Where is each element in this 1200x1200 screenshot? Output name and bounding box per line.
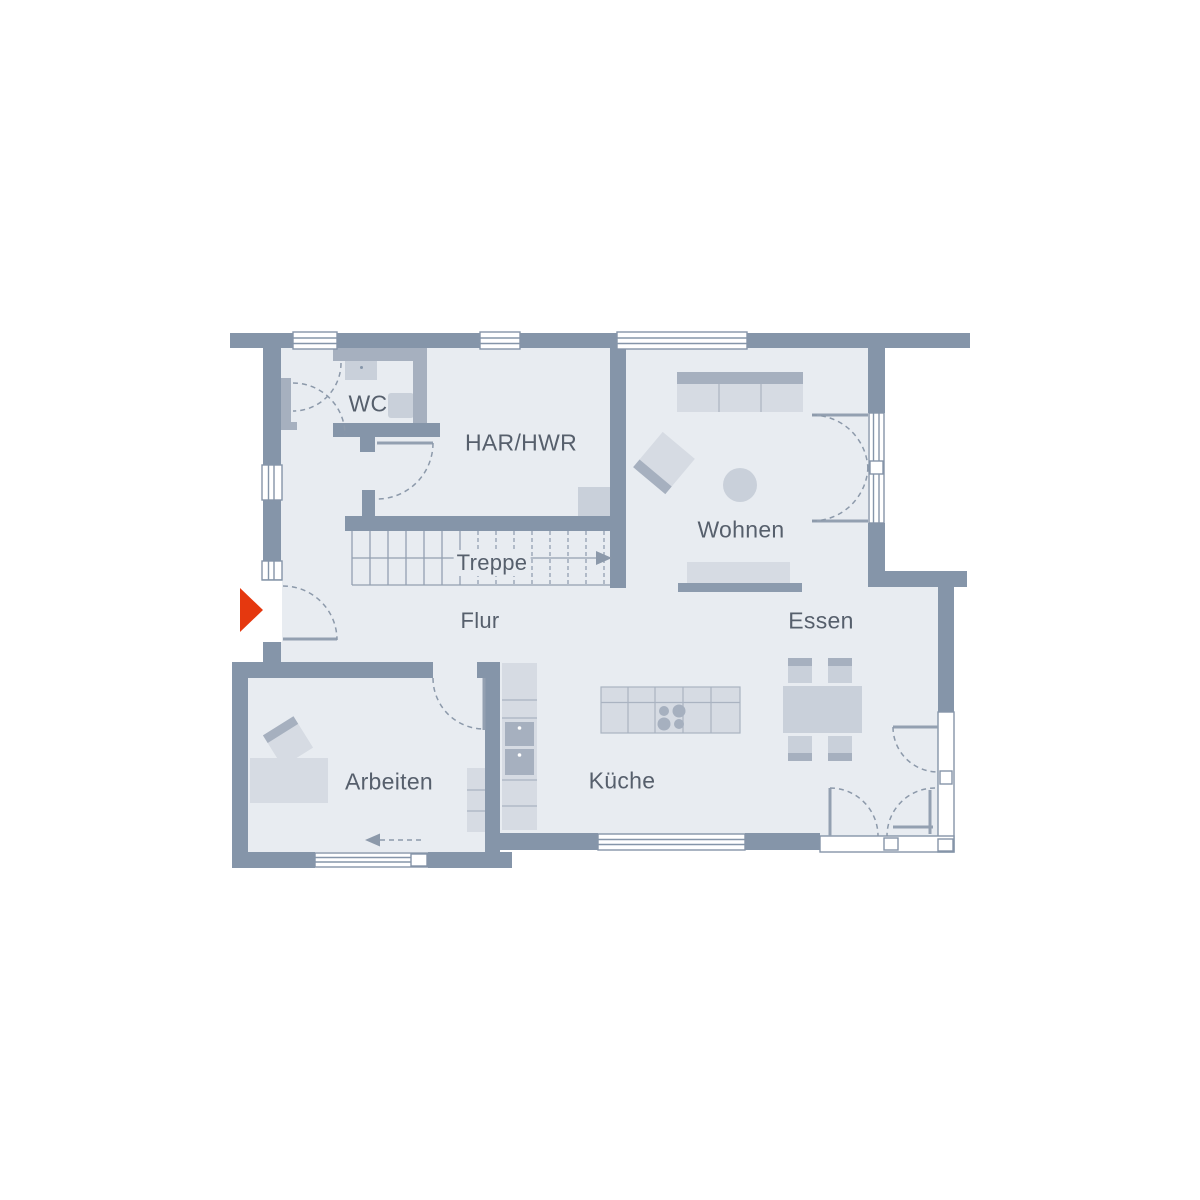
window-kueche	[598, 834, 745, 850]
room-label-kueche: Küche	[589, 768, 656, 795]
french-door-wohnen	[812, 413, 884, 523]
window-left-upper	[262, 465, 282, 500]
window-har	[480, 332, 520, 349]
linework-overlay	[0, 0, 1200, 1200]
sliding-door-arrow-icon	[365, 834, 425, 847]
entrance-direction-arrow-icon	[240, 588, 263, 632]
room-label-flur: Flur	[460, 608, 499, 634]
room-label-wc: WC	[349, 391, 388, 418]
room-label-wohnen: Wohnen	[697, 517, 784, 544]
corner-glazing	[820, 712, 954, 852]
door-arc-wc	[293, 363, 345, 435]
room-label-arbeiten: Arbeiten	[345, 769, 433, 796]
window-wohnen-top	[617, 332, 747, 349]
cooktop-icon	[658, 705, 686, 731]
room-label-har-hwr: HAR/HWR	[465, 430, 577, 457]
entrance-door	[262, 580, 337, 642]
kitchen-island-grid	[601, 687, 740, 733]
door-arbeiten	[433, 678, 484, 730]
floor-plan: WC HAR/HWR Treppe Flur Wohnen Essen Arbe…	[0, 0, 1200, 1200]
room-label-essen: Essen	[788, 608, 853, 635]
room-label-treppe: Treppe	[454, 550, 531, 576]
window-left-lower	[262, 561, 282, 580]
window-wc	[293, 332, 337, 349]
sliding-window-arbeiten	[315, 853, 428, 867]
door-har	[377, 443, 433, 499]
